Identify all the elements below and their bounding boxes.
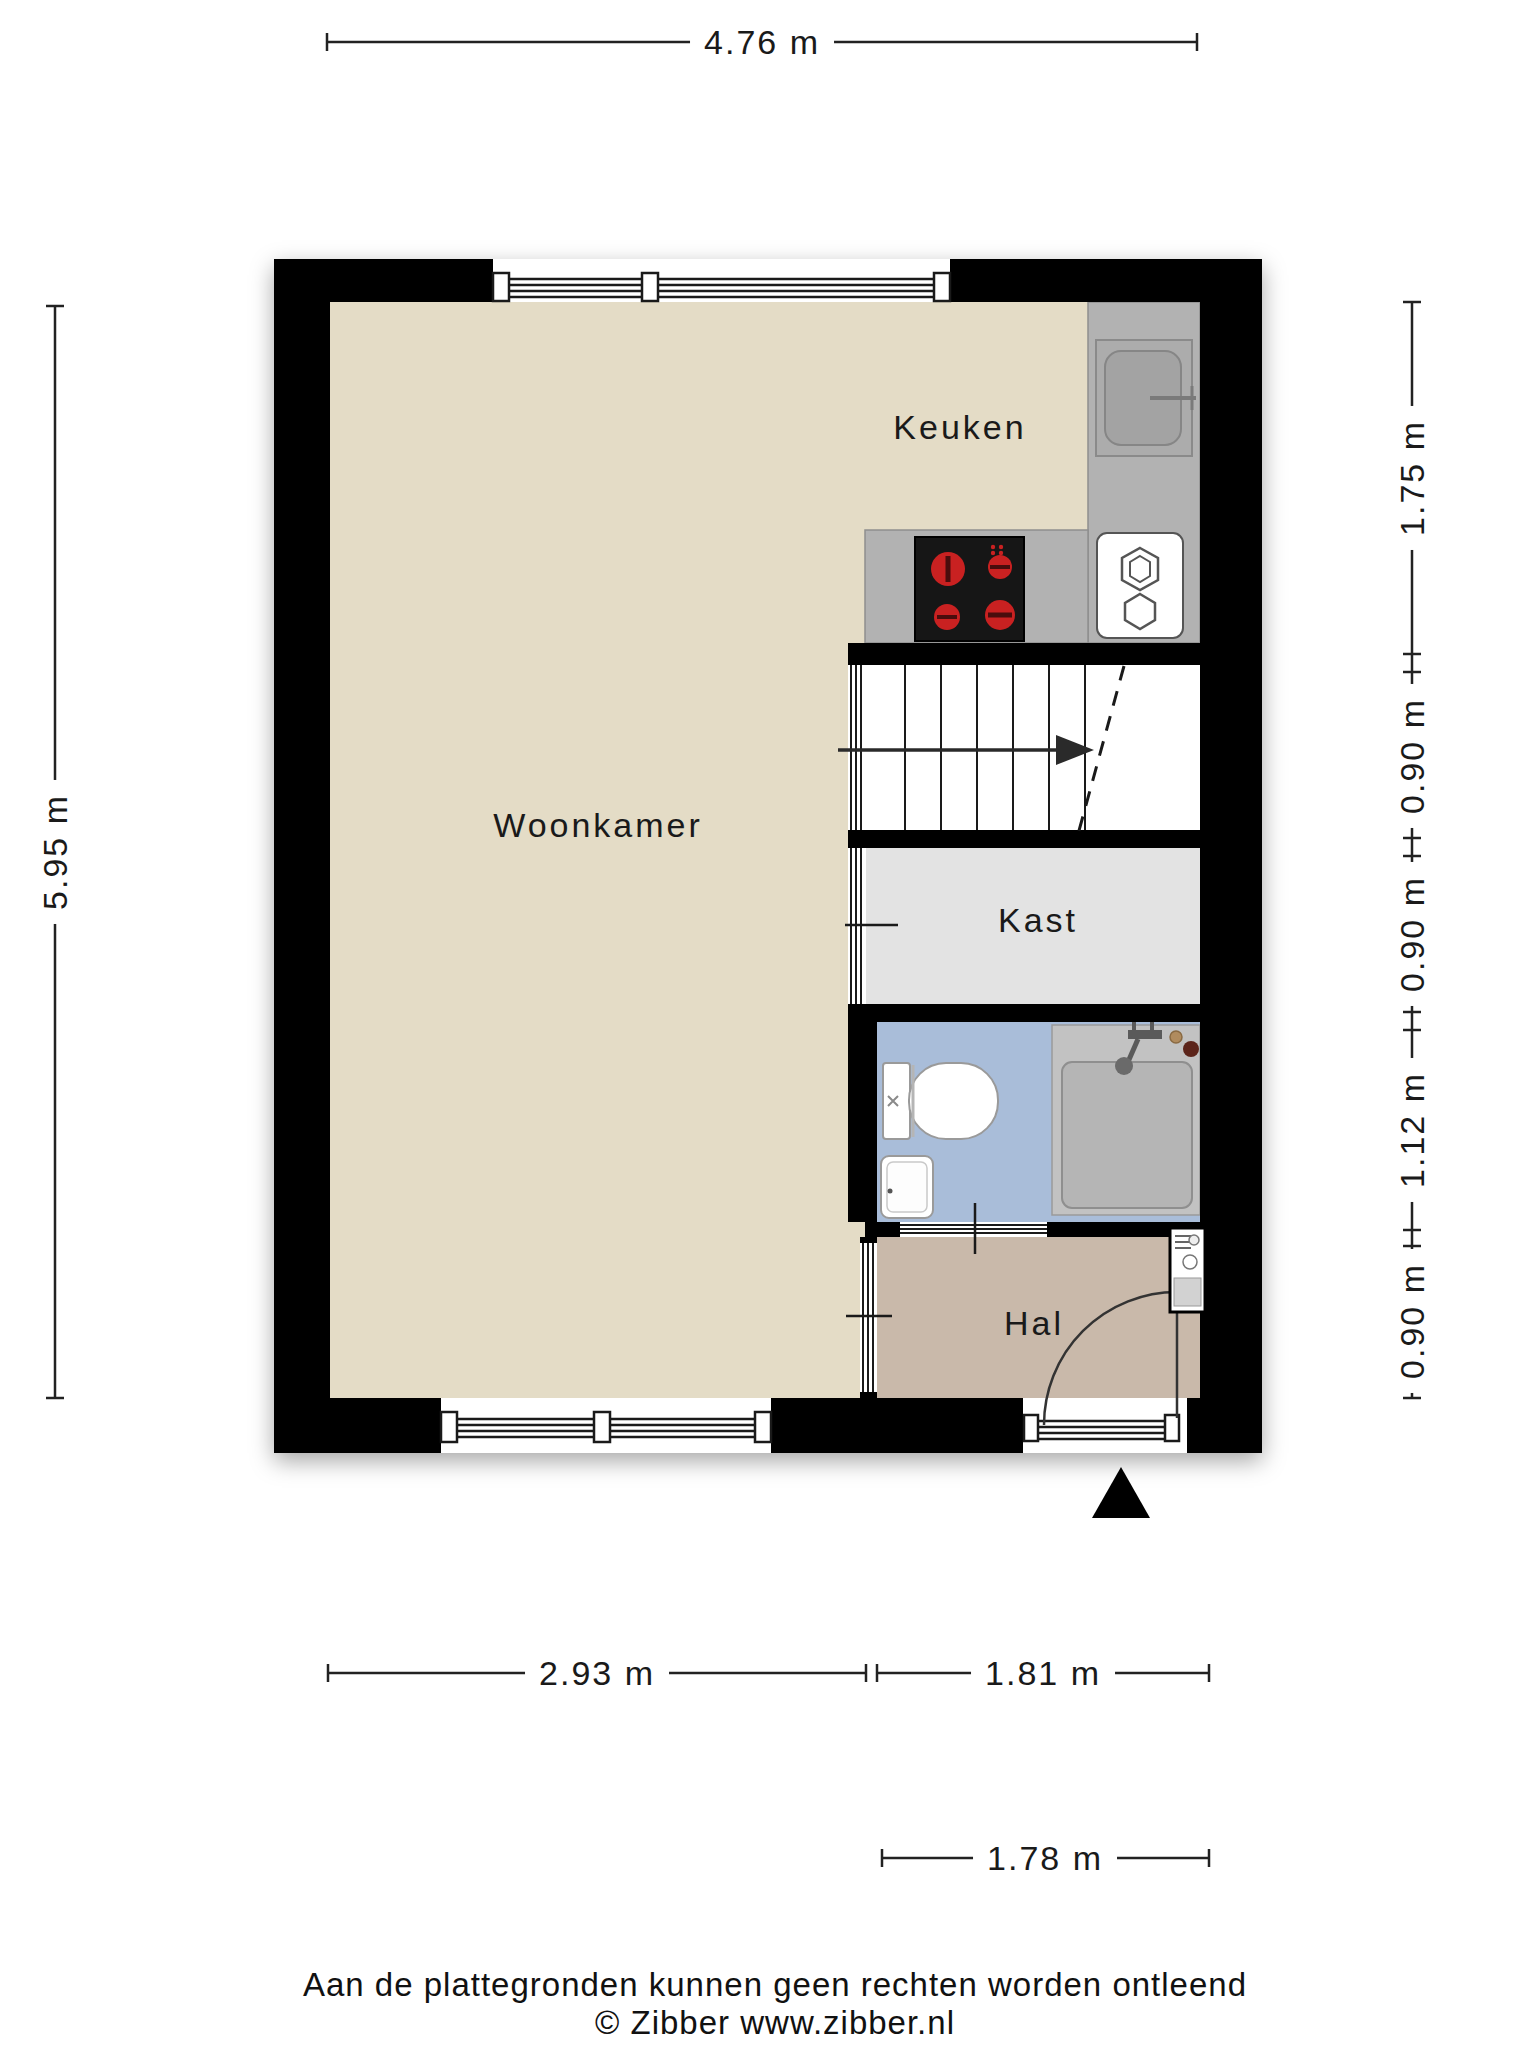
wall-kitchen-stairs bbox=[848, 643, 1200, 665]
dim-entrance: 1.78 m bbox=[973, 1837, 1117, 1880]
soap-dish-icon bbox=[1170, 1031, 1182, 1043]
room-label-kast: Kast bbox=[998, 901, 1078, 940]
dim-right-kast: 0.90 m bbox=[1391, 862, 1434, 1006]
door-stairs bbox=[848, 665, 866, 830]
doorbell-icon bbox=[1189, 1235, 1199, 1245]
dim-top: 4.76 m bbox=[690, 21, 834, 64]
entrance-arrow bbox=[1092, 1467, 1150, 1518]
window-bottom bbox=[441, 1398, 771, 1453]
washbasin bbox=[881, 1156, 933, 1218]
wall-bath-left bbox=[848, 1022, 877, 1222]
shower bbox=[1052, 1018, 1200, 1215]
floorplan-page: Keuken Woonkamer Kast Hal 4.76 m 5.95 m … bbox=[0, 0, 1536, 2048]
dim-right-badkamer: 1.12 m bbox=[1391, 1058, 1434, 1202]
room-label-hal: Hal bbox=[1004, 1304, 1064, 1343]
room-label-woonkamer: Woonkamer bbox=[493, 806, 703, 845]
wall-bath-hall-left bbox=[865, 1222, 900, 1237]
basin-tap-icon bbox=[888, 1189, 893, 1194]
drain-icon bbox=[1183, 1041, 1199, 1057]
window-top bbox=[493, 259, 950, 302]
footer-copyright: © Zibber www.zibber.nl bbox=[595, 2004, 955, 2042]
toilet bbox=[883, 1063, 998, 1139]
dim-bottom-hal: 1.81 m bbox=[971, 1652, 1115, 1695]
room-label-keuken: Keuken bbox=[893, 408, 1026, 447]
wall-left bbox=[274, 259, 330, 1453]
dim-right-keuken: 1.75 m bbox=[1391, 406, 1434, 550]
kitchen-stove bbox=[915, 537, 1024, 641]
stairwell-floor bbox=[865, 665, 1200, 830]
kitchen-sink bbox=[1096, 340, 1196, 456]
dim-left: 5.95 m bbox=[34, 780, 77, 924]
wall-right bbox=[1200, 259, 1262, 1453]
footer-disclaimer: Aan de plattegronden kunnen geen rechten… bbox=[303, 1966, 1247, 2004]
dim-bottom-woonkamer: 2.93 m bbox=[525, 1652, 669, 1695]
boiler bbox=[1097, 533, 1183, 638]
dim-right-hal: 0.90 m bbox=[1391, 1249, 1434, 1393]
wall-closet-bath bbox=[848, 1004, 1200, 1022]
dim-right-trap: 0.90 m bbox=[1391, 684, 1434, 828]
meter-cabinet bbox=[1170, 1228, 1205, 1312]
floorplan-drawing bbox=[0, 0, 1536, 2048]
wall-stairs-closet bbox=[848, 830, 1200, 848]
